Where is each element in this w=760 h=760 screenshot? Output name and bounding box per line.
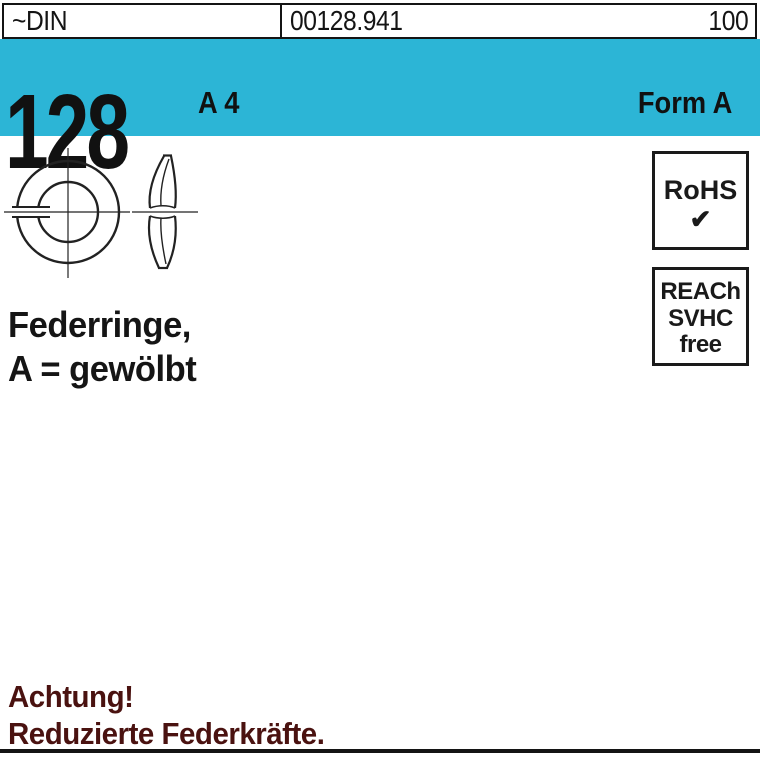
check-icon: ✔ [655,204,746,234]
product-title-line-2: A = gewölbt [8,347,196,391]
rohs-badge: RoHS ✔ [652,151,749,250]
article-number: 00128.941 [290,5,403,37]
spring-washer-drawing [0,145,210,287]
side-lower-leaf-top [150,216,175,218]
side-inner-upper-line [161,159,169,206]
warning-line-1: Achtung! [8,678,324,715]
material-label: A 4 [198,85,239,121]
rohs-label: RoHS [655,176,746,204]
warning-note: Achtung! Reduzierte Federkräfte. [8,678,324,752]
reach-line-1: REACh [655,279,746,306]
header-cell-standard: ~DIN [4,5,282,37]
din-band: 128 A 4 Form A [0,39,760,136]
reach-badge: REACh SVHC free [652,267,749,366]
reach-line-3: free [655,332,746,359]
product-title: Federringe, A = gewölbt [8,303,196,391]
side-inner-lower-line [161,218,166,264]
din-standard-label: ~DIN [12,5,67,37]
packaging-quantity: 100 [708,5,748,37]
form-label: Form A [638,85,732,121]
header-cell-article: 00128.941 [282,5,703,37]
side-left-lower-edge [149,216,159,268]
side-upper-leaf-bottom [150,206,175,208]
reach-line-2: SVHC [655,306,746,333]
product-title-line-1: Federringe, [8,303,196,347]
header-cell-quantity: 100 [703,5,755,37]
warning-line-2: Reduzierte Federkräfte. [8,715,324,752]
product-card: ~DIN 00128.941 100 128 A 4 Form A [0,0,760,760]
bottom-divider [0,749,760,753]
header-bar: ~DIN 00128.941 100 [2,3,757,39]
side-right-upper-edge [171,156,176,208]
side-right-lower-edge [167,216,176,268]
